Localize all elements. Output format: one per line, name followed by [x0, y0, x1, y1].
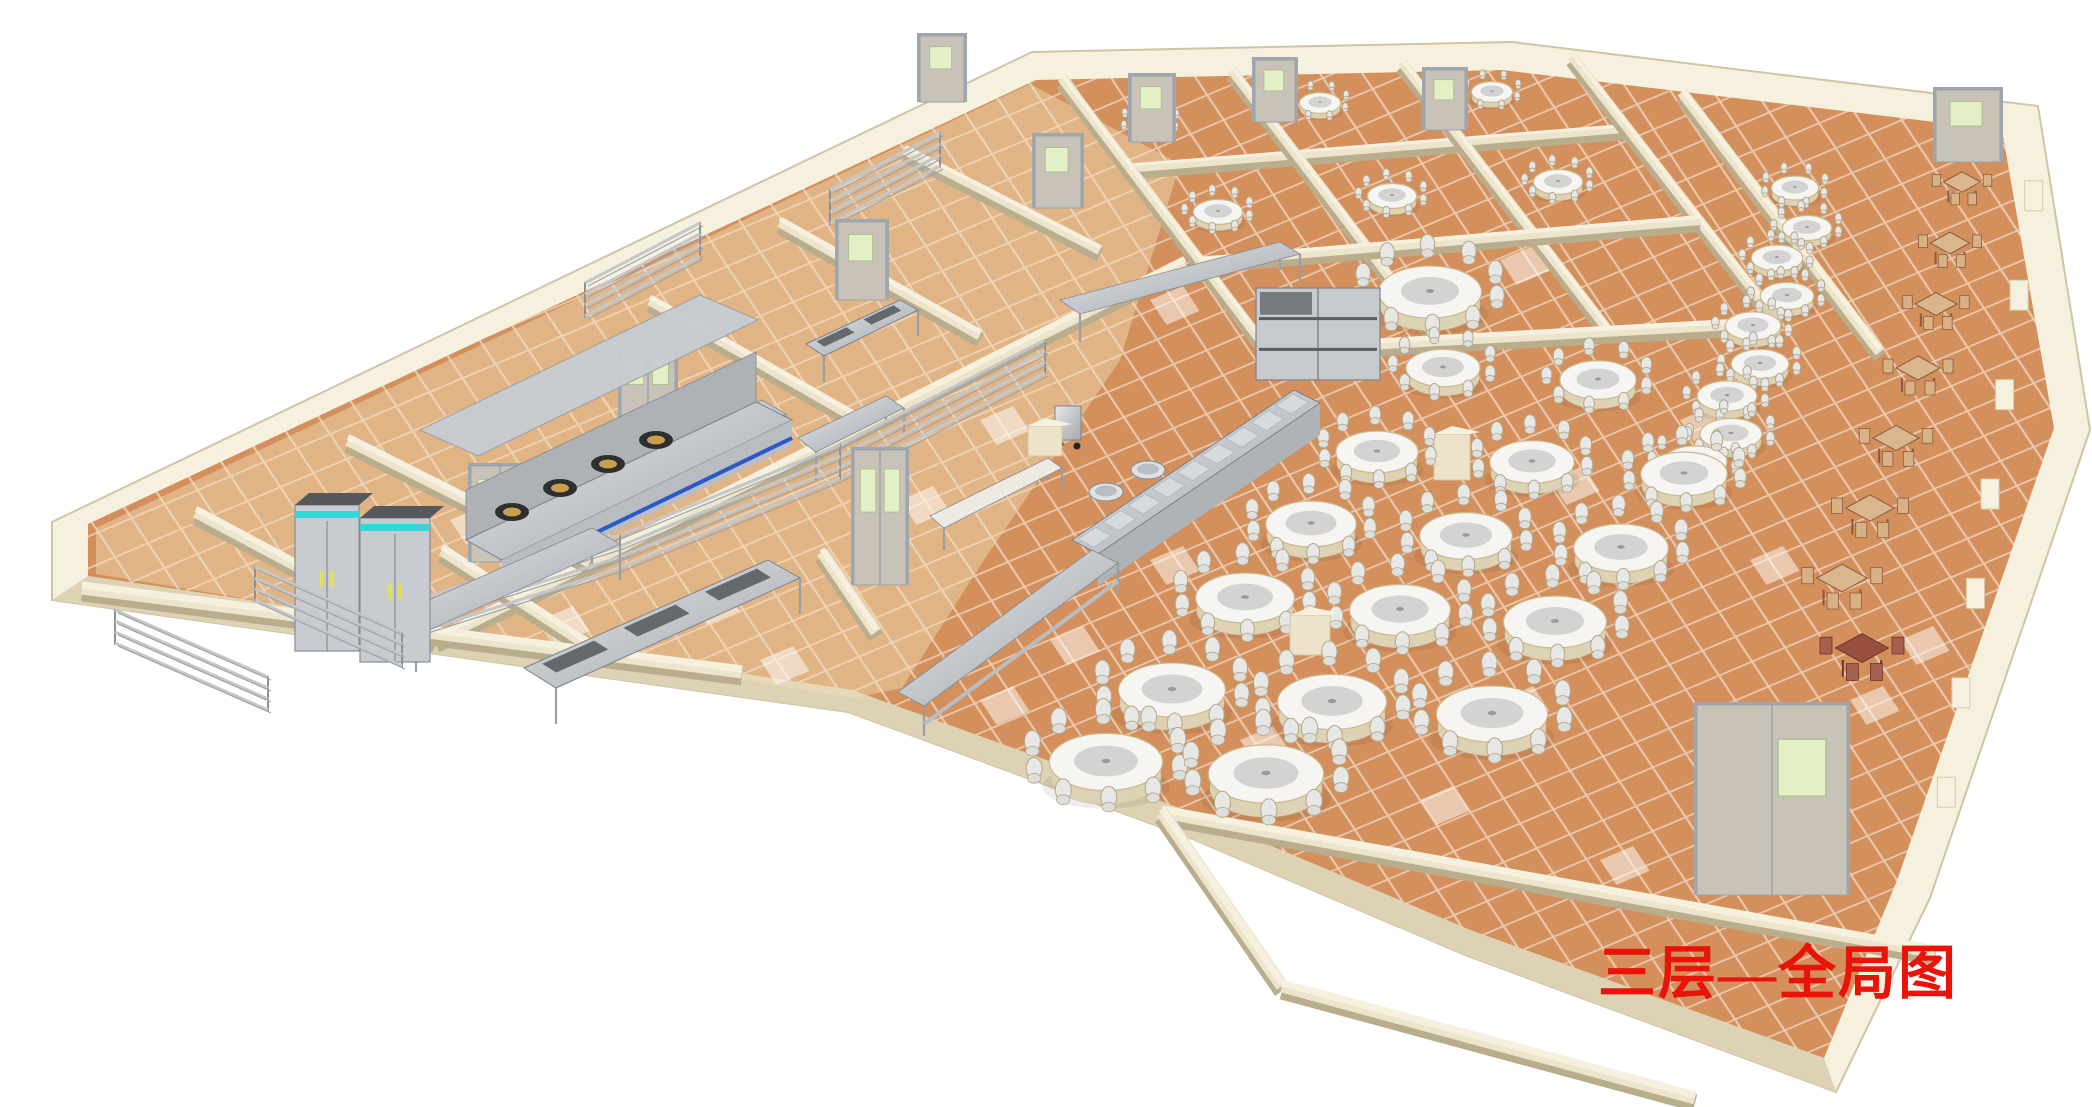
floorplan-3d-render: 三层—全局图 [0, 0, 2092, 1107]
door-icon [1422, 67, 1468, 130]
floor-caption: 三层—全局图 [1598, 942, 1958, 1006]
door-icon [1933, 87, 2003, 162]
door-icon [1032, 133, 1084, 208]
door-icon [835, 219, 889, 300]
stainless-cabinet-icon [1256, 288, 1380, 380]
door-icon [1128, 73, 1176, 142]
door-icon [1252, 57, 1298, 122]
door-icon [917, 33, 967, 102]
door-icon [851, 447, 909, 585]
door-icon [1694, 702, 1850, 895]
